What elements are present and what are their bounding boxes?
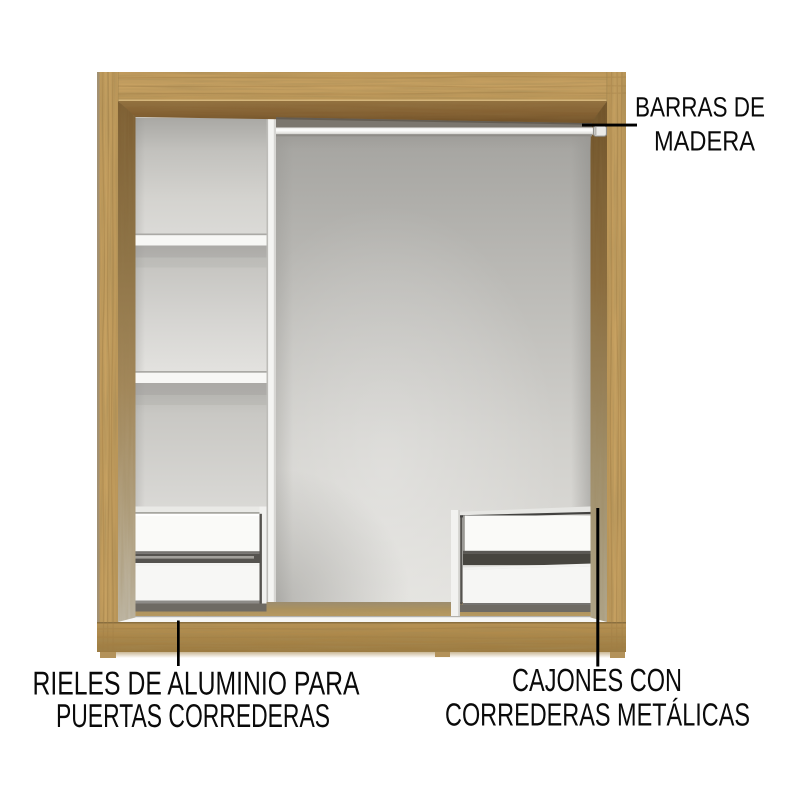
svg-text:MADERA: MADERA	[654, 125, 755, 156]
svg-text:PUERTAS CORREDERAS: PUERTAS CORREDERAS	[56, 697, 330, 734]
svg-text:CAJONES CON: CAJONES CON	[512, 662, 682, 698]
svg-text:BARRAS DE: BARRAS DE	[635, 91, 765, 122]
svg-text:CORREDERAS METÁLICAS: CORREDERAS METÁLICAS	[445, 697, 750, 733]
